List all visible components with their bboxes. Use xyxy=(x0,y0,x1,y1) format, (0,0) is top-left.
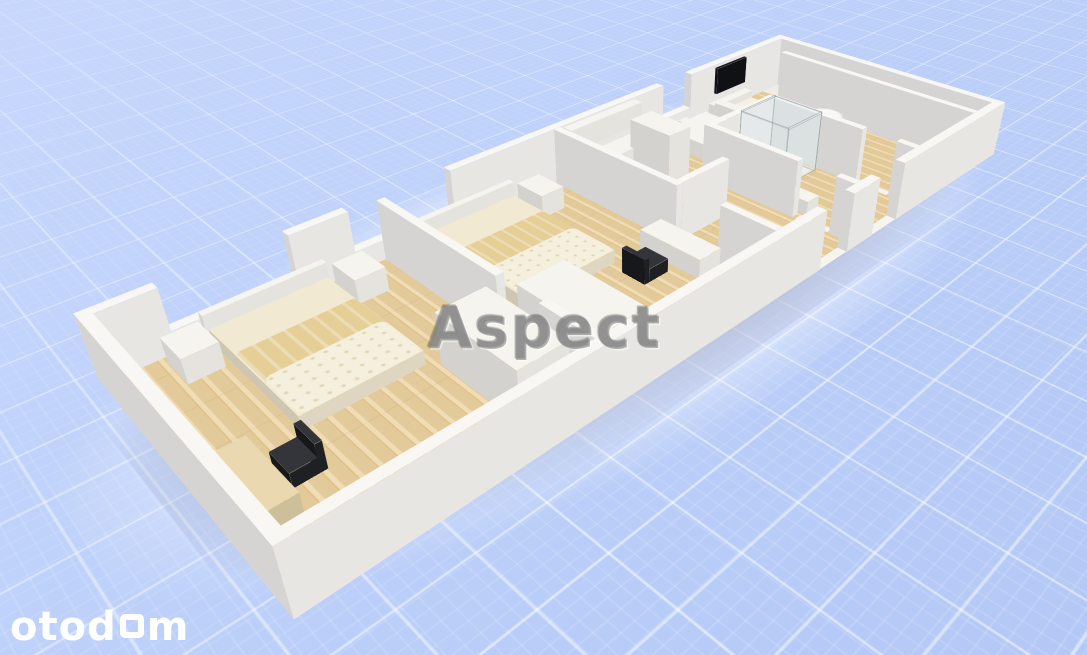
logo-square-glyph xyxy=(120,614,144,638)
floorplan-image: Aspect otodm xyxy=(0,0,1087,655)
logo-text-suffix: m xyxy=(147,604,190,650)
office-chair-back-south xyxy=(645,258,650,286)
otodom-logo: otodm xyxy=(10,604,189,650)
watermark: Aspect xyxy=(428,294,662,362)
logo-text-prefix: otod xyxy=(10,604,117,650)
